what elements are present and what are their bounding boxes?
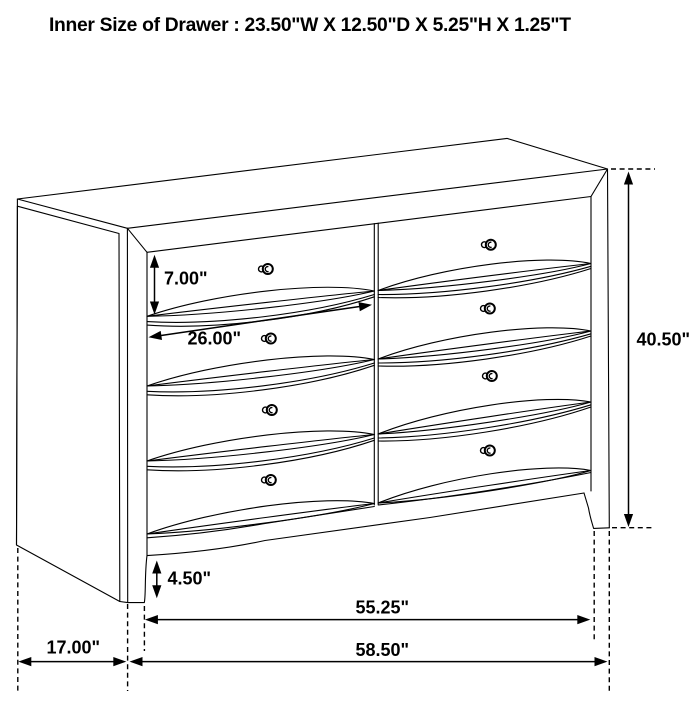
svg-text:55.25": 55.25" [356, 597, 410, 617]
svg-text:Inner Size of Drawer : 23.50"W: Inner Size of Drawer : 23.50"W X 12.50"D… [49, 15, 571, 36]
svg-text:7.00": 7.00" [164, 269, 208, 289]
svg-text:58.50": 58.50" [356, 640, 410, 660]
svg-text:26.00": 26.00" [188, 329, 242, 349]
svg-text:4.50": 4.50" [168, 569, 212, 589]
svg-text:40.50": 40.50" [637, 330, 691, 350]
svg-text:17.00": 17.00" [47, 638, 101, 658]
